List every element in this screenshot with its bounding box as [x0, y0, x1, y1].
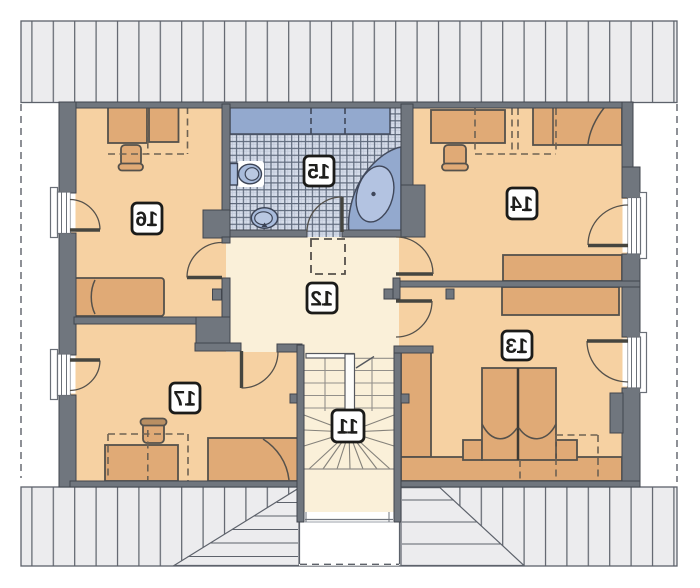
svg-text:17: 17 — [174, 388, 196, 411]
svg-text:11: 11 — [337, 416, 359, 439]
svg-text:14: 14 — [510, 193, 533, 216]
svg-text:13: 13 — [506, 335, 528, 358]
svg-text:16: 16 — [136, 208, 158, 231]
svg-text:15: 15 — [307, 161, 330, 184]
svg-text:12: 12 — [311, 288, 333, 311]
